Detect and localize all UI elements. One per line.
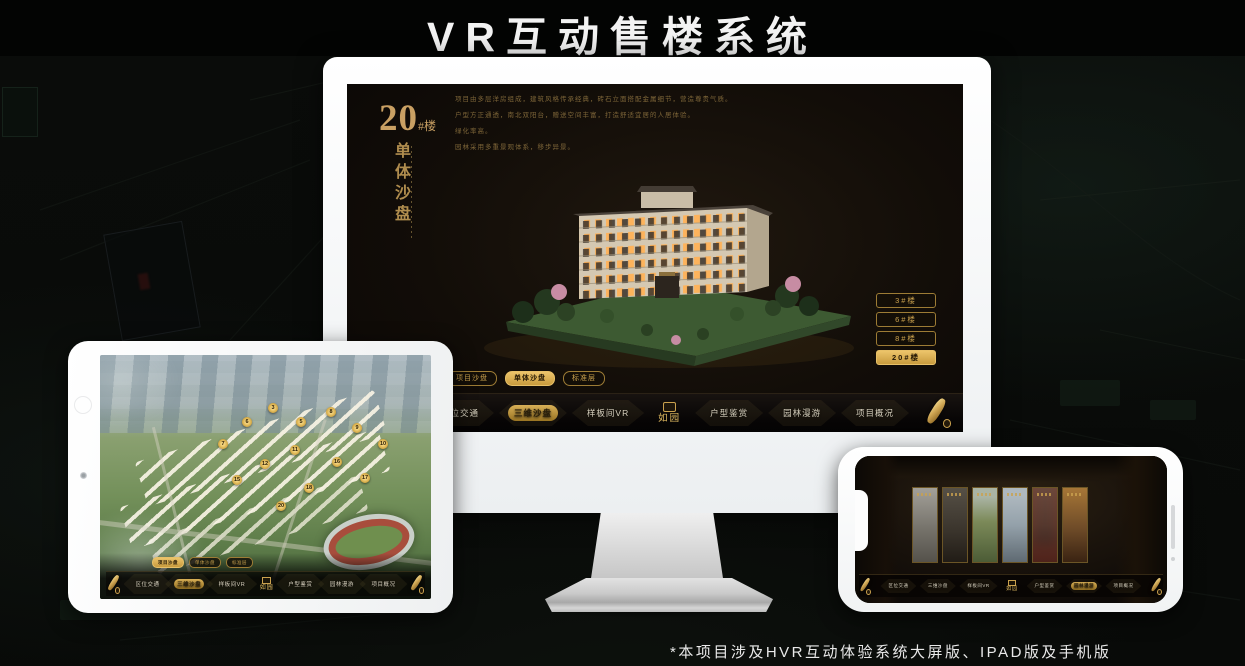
- building-marker[interactable]: 11: [290, 445, 300, 455]
- building-marker[interactable]: 8: [326, 407, 336, 417]
- nav-project-overview[interactable]: 项目概况: [850, 405, 900, 421]
- building-marker[interactable]: 15: [232, 475, 242, 485]
- block-title: 20#楼: [379, 97, 436, 140]
- building-marker[interactable]: 18: [304, 483, 314, 493]
- building-button-20[interactable]: 20#楼: [876, 350, 936, 365]
- nav-3d-sandtable[interactable]: 三维沙盘: [925, 582, 951, 590]
- scroll-menu-icon[interactable]: [923, 397, 953, 429]
- phone-device: 区位交通 三维沙盘 样板间VR 如园 户型鉴赏 园林漫游 项目概况: [838, 447, 1183, 612]
- building-marker[interactable]: 10: [378, 439, 388, 449]
- nav-project-overview[interactable]: 项目概况: [1110, 582, 1136, 590]
- framed-certificate: [103, 221, 201, 341]
- nav-showflat-vr[interactable]: 样板间VR: [581, 405, 635, 421]
- brand-logo: 如园: [658, 402, 681, 424]
- scroll-menu-icon[interactable]: [106, 574, 121, 594]
- brand-emblem-icon: [262, 577, 271, 584]
- nav-showflat-vr[interactable]: 样板间VR: [216, 579, 249, 589]
- red-seal-mark: [138, 273, 151, 290]
- building-marker[interactable]: 6: [242, 417, 252, 427]
- tablet-device: 3 5 6 7 8 9 10 11 12 15 16 17 18 20 项目沙盘…: [68, 341, 453, 613]
- building-marker[interactable]: 9: [352, 423, 362, 433]
- building-selector: 3#楼 6#楼 8#楼 20#楼: [876, 293, 936, 365]
- subtab-project-sandtable[interactable]: 项目沙盘: [447, 371, 497, 386]
- phone-navbar: 区位交通 三维沙盘 样板间VR 如园 户型鉴赏 园林漫游 项目概况: [859, 574, 1163, 597]
- phone-camera-icon: [1171, 557, 1175, 561]
- nav-floorplan-gallery[interactable]: 户型鉴赏: [1032, 582, 1058, 590]
- subtab-standard-floor[interactable]: 标准层: [563, 371, 605, 386]
- building-marker[interactable]: 3: [268, 403, 278, 413]
- nav-3d-sandtable[interactable]: 三维沙盘: [508, 405, 558, 421]
- block-suffix: #楼: [418, 119, 436, 133]
- building-button-6[interactable]: 6#楼: [876, 312, 936, 327]
- phone-speaker-slot: [1171, 505, 1175, 549]
- brand-logo-text: 如园: [260, 585, 274, 591]
- nav-3d-sandtable[interactable]: 三维沙盘: [174, 579, 204, 589]
- block-number: 20: [379, 98, 418, 139]
- tablet-screen: 3 5 6 7 8 9 10 11 12 15 16 17 18 20 项目沙盘…: [100, 355, 431, 599]
- nav-garden-roam[interactable]: 园林漫游: [777, 405, 827, 421]
- footnote-text: *本项目涉及HVR互动体验系统大屏版、IPAD版及手机版: [670, 641, 1111, 662]
- scene-gallery: [912, 487, 1088, 563]
- building-render: [451, 144, 881, 372]
- building-marker[interactable]: 16: [332, 457, 342, 467]
- brand-logo: 如园: [1006, 580, 1018, 592]
- brand-logo: 如园: [260, 577, 274, 591]
- brand-emblem-icon: [663, 402, 676, 412]
- nav-location-traffic[interactable]: 区位交通: [133, 579, 163, 589]
- building-marker[interactable]: 17: [360, 473, 370, 483]
- phone-notch: [855, 490, 868, 551]
- small-sign-board: [2, 87, 38, 137]
- tablet-emboss-logo: [74, 396, 92, 414]
- building-button-8[interactable]: 8#楼: [876, 331, 936, 346]
- subtab-single-sandtable[interactable]: 单体沙盘: [189, 557, 221, 568]
- subtab-project-sandtable[interactable]: 项目沙盘: [152, 557, 184, 568]
- nav-floorplan-gallery[interactable]: 户型鉴赏: [285, 579, 315, 589]
- phone-screen: 区位交通 三维沙盘 样板间VR 如园 户型鉴赏 园林漫游 项目概况: [855, 456, 1167, 603]
- subtab-single-sandtable[interactable]: 单体沙盘: [505, 371, 555, 386]
- gallery-panel[interactable]: [1002, 487, 1028, 563]
- description-line: 绿化率高。: [455, 124, 875, 140]
- nav-garden-roam[interactable]: 园林漫游: [327, 579, 357, 589]
- gallery-panel[interactable]: [912, 487, 938, 563]
- building-marker[interactable]: 12: [260, 459, 270, 469]
- scroll-menu-icon[interactable]: [1150, 577, 1163, 595]
- subtab-standard-floor[interactable]: 标准层: [226, 557, 253, 568]
- monitor-stand-neck: [590, 513, 724, 585]
- vertical-divider: [411, 146, 412, 238]
- building-marker[interactable]: 20: [276, 501, 286, 511]
- nav-showflat-vr[interactable]: 样板间VR: [964, 582, 992, 590]
- scroll-menu-icon[interactable]: [859, 577, 872, 595]
- brand-logo-text: 如园: [1006, 587, 1018, 592]
- scroll-menu-icon[interactable]: [410, 574, 425, 594]
- tablet-navbar: 区位交通 三维沙盘 样板间VR 如园 户型鉴赏 园林漫游 项目概况: [106, 571, 425, 596]
- tablet-subtabs: 项目沙盘 单体沙盘 标准层: [152, 557, 253, 568]
- vertical-title: 单体沙盘: [388, 142, 412, 226]
- building-marker[interactable]: 7: [218, 439, 228, 449]
- building-marker[interactable]: 5: [296, 417, 306, 427]
- page-title: VR互动售楼系统: [0, 3, 1245, 63]
- gallery-panel[interactable]: [1062, 487, 1088, 563]
- nav-project-overview[interactable]: 项目概况: [368, 579, 398, 589]
- brand-logo-text: 如园: [658, 414, 681, 424]
- monitor-subtabs: 项目沙盘 单体沙盘 标准层: [447, 371, 605, 386]
- poster-canvas: VR互动售楼系统 20#楼 单体沙盘 项目由多层洋房组成，建筑风格传承经典，砖石…: [0, 0, 1245, 666]
- monitor-stand-base: [545, 578, 773, 612]
- nav-floorplan-gallery[interactable]: 户型鉴赏: [704, 405, 754, 421]
- gallery-panel[interactable]: [942, 487, 968, 563]
- nav-location-traffic[interactable]: 区位交通: [885, 582, 911, 590]
- gallery-panel[interactable]: [972, 487, 998, 563]
- gallery-panel[interactable]: [1032, 487, 1058, 563]
- building-button-3[interactable]: 3#楼: [876, 293, 936, 308]
- tablet-bottom-overlay: 项目沙盘 单体沙盘 标准层 区位交通 三维沙盘 样板间VR 如园 户型鉴赏 园林…: [100, 553, 431, 599]
- description-line: 项目由多层洋房组成，建筑风格传承经典，砖石立面搭配金属细节，营造尊贵气质。: [455, 92, 875, 108]
- tablet-camera-icon: [80, 472, 87, 479]
- nav-garden-roam[interactable]: 园林漫游: [1071, 582, 1097, 590]
- description-line: 户型方正通透，南北双阳台，赠送空间丰富，打造舒适宜居的人居体验。: [455, 108, 875, 124]
